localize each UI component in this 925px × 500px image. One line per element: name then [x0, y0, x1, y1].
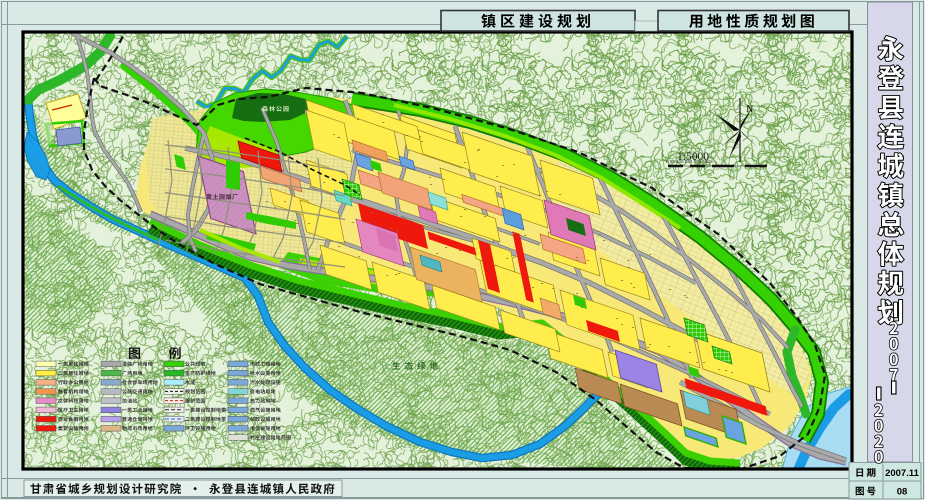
- svg-text:0 50 100 200 300: 0 50 100 200 300 400m: [666, 159, 714, 164]
- svg-text:N: N: [746, 104, 753, 115]
- svg-text:2007.11: 2007.11: [885, 468, 920, 479]
- svg-text:08: 08: [897, 487, 908, 498]
